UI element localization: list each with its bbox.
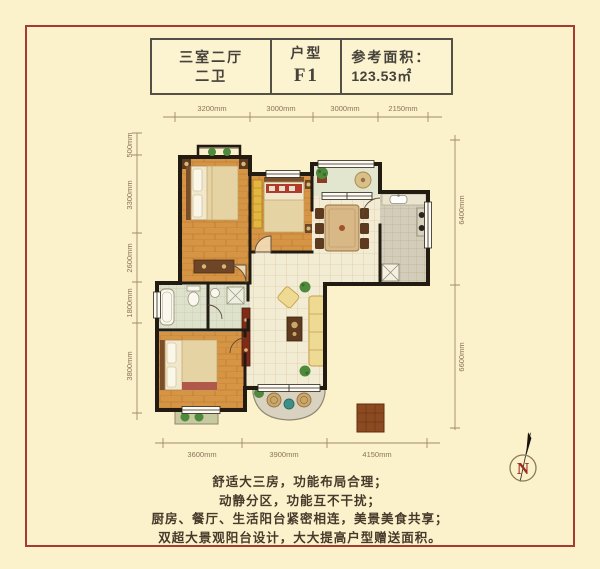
- bathtub-icon: [160, 289, 174, 325]
- dim-top-2: 3000mm: [266, 104, 295, 113]
- chair-icon: [315, 208, 324, 219]
- chair-icon: [360, 208, 369, 219]
- dim-top-1: 3200mm: [197, 104, 226, 113]
- balcony-table-icon: [284, 399, 294, 409]
- window-icon: [318, 161, 374, 168]
- window-icon: [182, 407, 220, 414]
- dim-left-5: 3800mm: [125, 351, 134, 380]
- dim-top-3: 3000mm: [330, 104, 359, 113]
- chair-icon: [315, 238, 324, 249]
- bed-icon: [186, 166, 191, 220]
- sliding-door-icon: [258, 385, 320, 393]
- description-line: 厨房、餐厅、生活阳台紧密相连，美景美食共享；: [0, 510, 600, 529]
- plant-icon: [223, 148, 231, 156]
- dim-left-2: 3300mm: [125, 180, 134, 209]
- chair-icon: [360, 223, 369, 234]
- chair-icon: [360, 238, 369, 249]
- window-icon: [425, 202, 432, 248]
- adjacent-structure: [357, 404, 384, 432]
- plant-icon: [300, 366, 311, 377]
- plant-icon: [208, 148, 216, 156]
- description-block: 舒适大三房，功能布局合理； 动静分区，功能互不干扰； 厨房、餐厅、生活阳台紧密相…: [0, 473, 600, 547]
- dim-left-4: 1800mm: [125, 288, 134, 317]
- sofa-icon: [309, 296, 325, 366]
- window-icon: [266, 171, 300, 178]
- window-icon: [154, 292, 161, 318]
- bedroom-2-furniture: [253, 177, 312, 233]
- bed-icon: [160, 340, 165, 390]
- balcony-chair-icon: [297, 393, 311, 407]
- plant-icon: [300, 282, 311, 293]
- toilet-icon: [187, 286, 200, 306]
- dim-bottom-1: 3600mm: [187, 450, 216, 459]
- dim-top-4: 2150mm: [388, 104, 417, 113]
- plant-icon: [316, 167, 328, 179]
- sliding-door-icon: [322, 193, 372, 200]
- dim-right-1: 6400mm: [457, 195, 466, 224]
- bay-window-icon: [198, 148, 240, 156]
- description-line: 舒适大三房，功能布局合理；: [0, 473, 600, 492]
- dim-bottom-2: 3900mm: [269, 450, 298, 459]
- dim-right-2: 6600mm: [457, 342, 466, 371]
- description-line: 动静分区，功能互不干扰；: [0, 492, 600, 511]
- dining-furniture: [315, 205, 369, 251]
- washbasin-icon: [211, 289, 220, 298]
- dresser-icon: [194, 260, 234, 273]
- dim-left-3: 2600mm: [125, 243, 134, 272]
- chair-icon: [315, 223, 324, 234]
- dim-bottom-3: 4150mm: [362, 450, 391, 459]
- description-line: 双超大景观阳台设计，大大提高户型赠送面积。: [0, 529, 600, 548]
- coffee-table-icon: [287, 317, 302, 341]
- dim-left-1: 500mm: [125, 132, 134, 157]
- balcony-chair-icon: [267, 393, 281, 407]
